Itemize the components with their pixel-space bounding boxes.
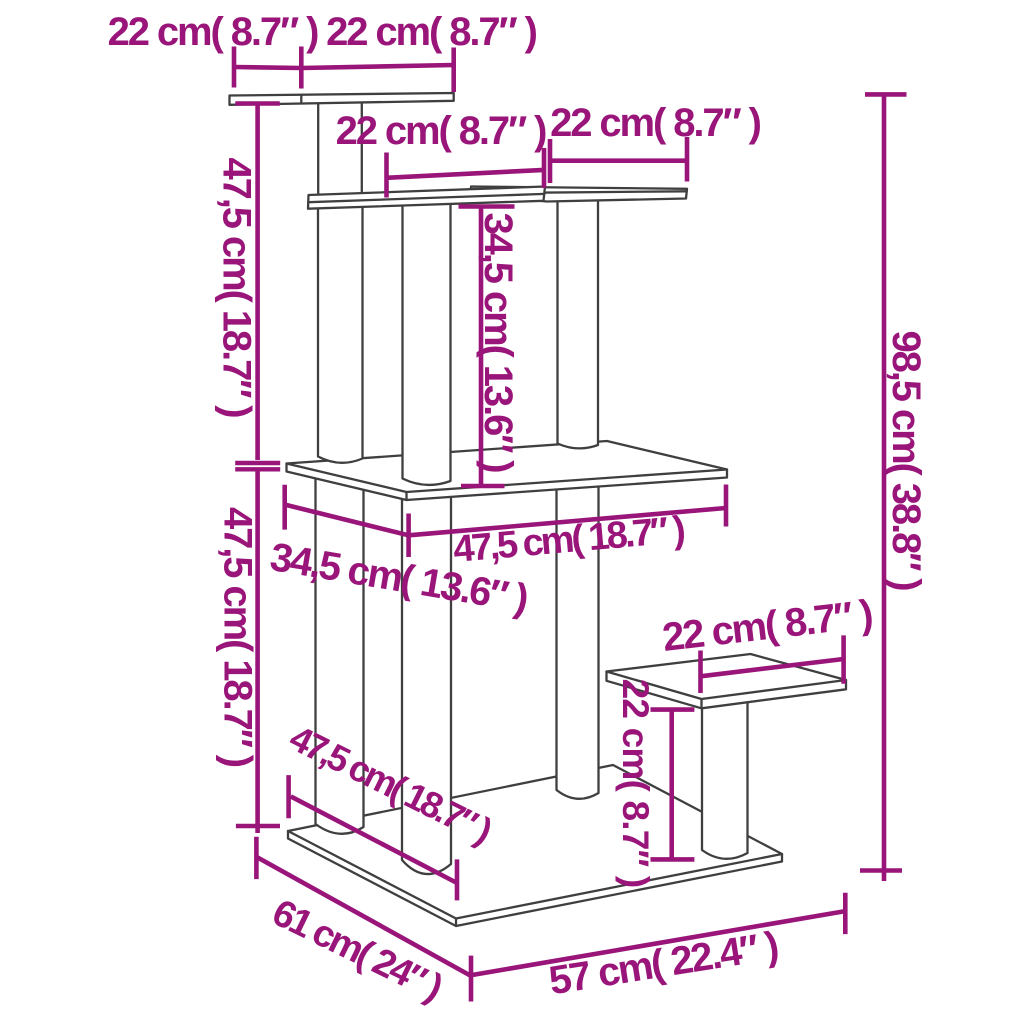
svg-text:34,5 cm( 13.6″ ): 34,5 cm( 13.6″ ) bbox=[476, 212, 520, 472]
svg-text:22 cm( 8.7″ ): 22 cm( 8.7″ ) bbox=[550, 101, 761, 145]
svg-text:47,5 cm( 18.7″ ): 47,5 cm( 18.7″ ) bbox=[215, 507, 259, 767]
svg-text:98,5 cm( 38.8″ ): 98,5 cm( 38.8″ ) bbox=[884, 330, 928, 590]
svg-text:22 cm( 8.7″ ): 22 cm( 8.7″ ) bbox=[108, 10, 319, 54]
svg-text:22 cm( 8.7″ ): 22 cm( 8.7″ ) bbox=[326, 10, 537, 54]
svg-text:47,5 cm( 18.7″ ): 47,5 cm( 18.7″ ) bbox=[215, 157, 259, 417]
svg-text:22 cm( 8.7″ ): 22 cm( 8.7″ ) bbox=[336, 109, 547, 153]
svg-text:22 cm( 8.7″ ): 22 cm( 8.7″ ) bbox=[615, 679, 656, 888]
